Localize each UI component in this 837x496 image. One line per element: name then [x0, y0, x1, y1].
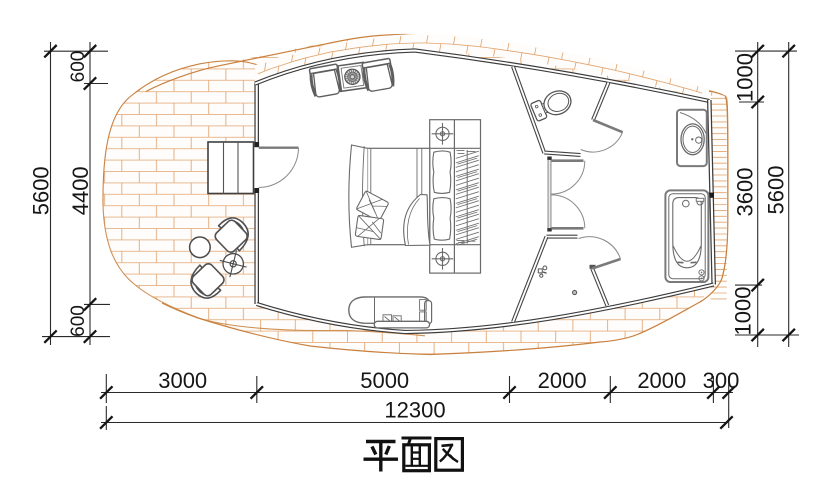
svg-text:600: 600 — [68, 305, 89, 337]
svg-text:600: 600 — [68, 51, 89, 83]
svg-text:5600: 5600 — [29, 166, 54, 215]
svg-text:2000: 2000 — [637, 368, 686, 393]
svg-text:2000: 2000 — [538, 368, 587, 393]
svg-text:300: 300 — [703, 368, 740, 393]
svg-text:4400: 4400 — [68, 166, 93, 215]
svg-text:1000: 1000 — [731, 287, 756, 336]
svg-text:5000: 5000 — [360, 368, 409, 393]
svg-text:1000: 1000 — [733, 53, 758, 102]
svg-text:3600: 3600 — [733, 168, 758, 217]
svg-text:5600: 5600 — [764, 166, 789, 215]
svg-text:3000: 3000 — [158, 368, 207, 393]
svg-text:12300: 12300 — [384, 398, 445, 423]
